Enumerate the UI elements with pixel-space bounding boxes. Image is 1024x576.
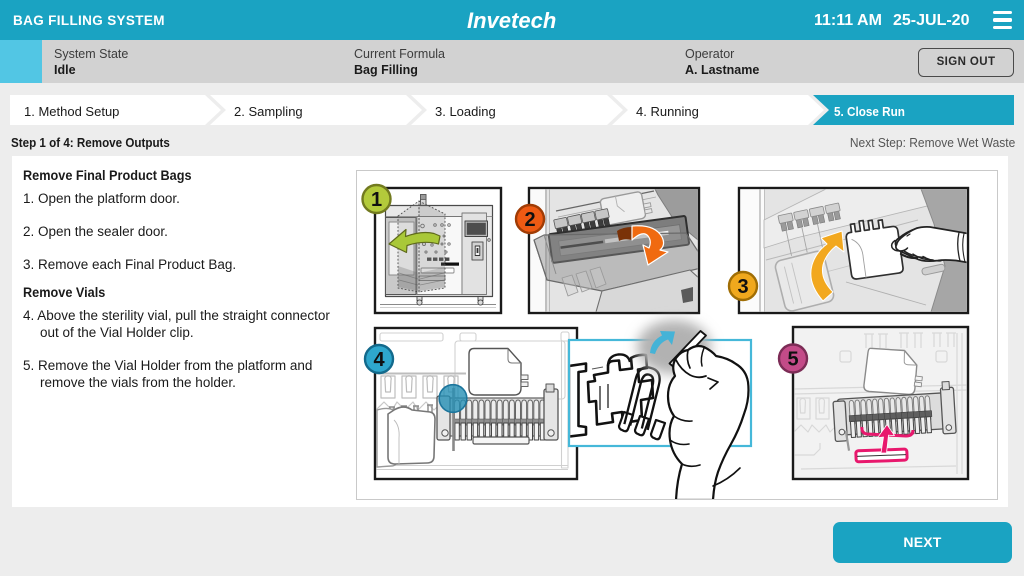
svg-text:2: 2	[524, 209, 535, 231]
svg-text:4: 4	[373, 349, 385, 371]
svg-text:1: 1	[371, 189, 382, 211]
svg-text:5: 5	[787, 349, 798, 371]
svg-text:3: 3	[737, 276, 748, 298]
